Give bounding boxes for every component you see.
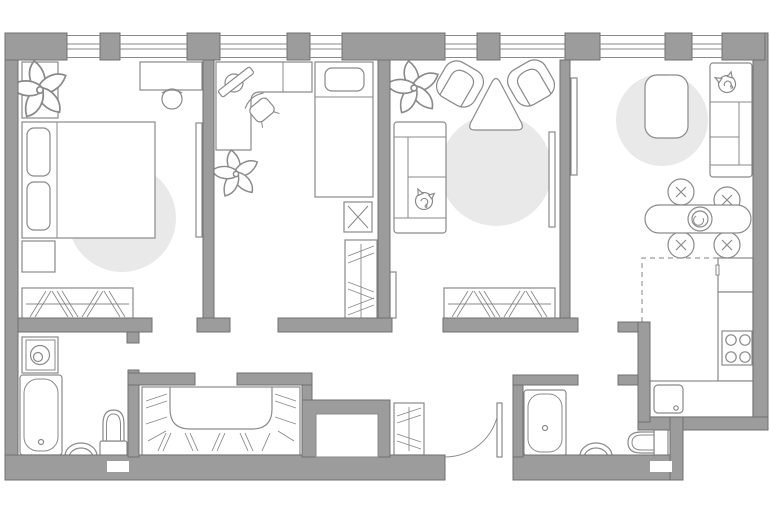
window [220,36,287,58]
room-bathroom-1 [20,337,127,468]
room-hallway [394,403,424,455]
wall-bottom-left [5,455,445,480]
window [445,36,477,58]
wall-left [5,33,18,480]
wall-closet-top-left [128,373,195,385]
wall-bedroom2-living [378,60,390,318]
wardrobe-hatched [345,240,377,322]
wall-bedroom2-bottom [278,318,392,332]
window [692,36,722,58]
room-bedroom-2 [210,62,377,322]
fridge-handle [716,265,719,275]
door-swing-arc [445,403,499,457]
window [67,36,100,58]
dining-chair [668,179,694,205]
kitchen-zone-dashed-line [642,258,718,322]
wall-pier [565,33,600,60]
wall-pier [342,33,445,60]
wall-living-kitchen [560,60,570,318]
wall-tee [197,318,230,332]
tv-panel [549,132,555,227]
coffee-table [645,75,688,138]
wall-closet-top-right [237,373,312,385]
wall-bathroom2-top-stub [618,375,638,385]
wall-kitchen-bottom [638,417,768,430]
wardrobe-hatched [22,288,133,319]
window [500,36,565,58]
open-door-leaf [390,272,396,318]
armchair [432,56,488,112]
utility-shaft-inner [316,414,378,457]
bathtub [20,375,62,455]
pillow [27,182,50,230]
plant-icon [385,61,441,115]
floor-plan [0,0,770,512]
wall-pier [187,33,220,60]
sink-drain [674,406,678,410]
wall-kitchen-left [638,322,650,422]
room-kitchen-living [571,63,753,417]
wall-pier [287,33,310,60]
room-bedroom-1 [9,61,202,319]
wall-bathroom2-top [513,375,578,385]
floor-plan-canvas [0,0,770,512]
door-leaf [497,403,502,457]
wardrobe-hatched [394,403,424,455]
wall-jamb [127,332,139,343]
wall-pier [5,33,67,60]
bathtub [524,390,566,456]
wall-right [753,33,768,430]
wall-bathroom2-left [513,375,523,457]
pillow [27,128,50,176]
u-shaped-wardrobe-hatched [142,387,300,455]
nightstand [22,241,55,272]
wardrobe-hatched [444,288,555,319]
toilet [628,429,668,456]
window [600,36,665,58]
vent-grille [650,461,672,472]
dining-chair [714,232,740,258]
plant-icon [210,150,260,198]
tv-panel [571,78,577,175]
wall-pier [722,33,765,60]
pillow [325,68,364,91]
wall-pier [100,33,120,60]
fridge [718,258,753,292]
sofa [394,122,446,233]
vent-grille [107,461,129,472]
tv-panel [196,123,202,237]
desk [140,62,202,90]
washing-machine [22,337,58,373]
rug-living-room [440,114,552,226]
window [120,36,187,58]
wall-bedroom1-bottom [18,318,152,332]
wall-pier [477,33,500,60]
wall-bedroom1-bedroom2 [203,60,214,318]
stove-4-burner [722,331,752,365]
entrance-door [445,403,502,457]
toilet [100,410,127,456]
dining-chair [668,232,694,258]
table-centerpiece [688,207,712,231]
wall-living-bottom [443,318,578,332]
room-walk-in-closet [142,387,300,455]
wall-pier [665,33,692,60]
window [310,36,342,58]
